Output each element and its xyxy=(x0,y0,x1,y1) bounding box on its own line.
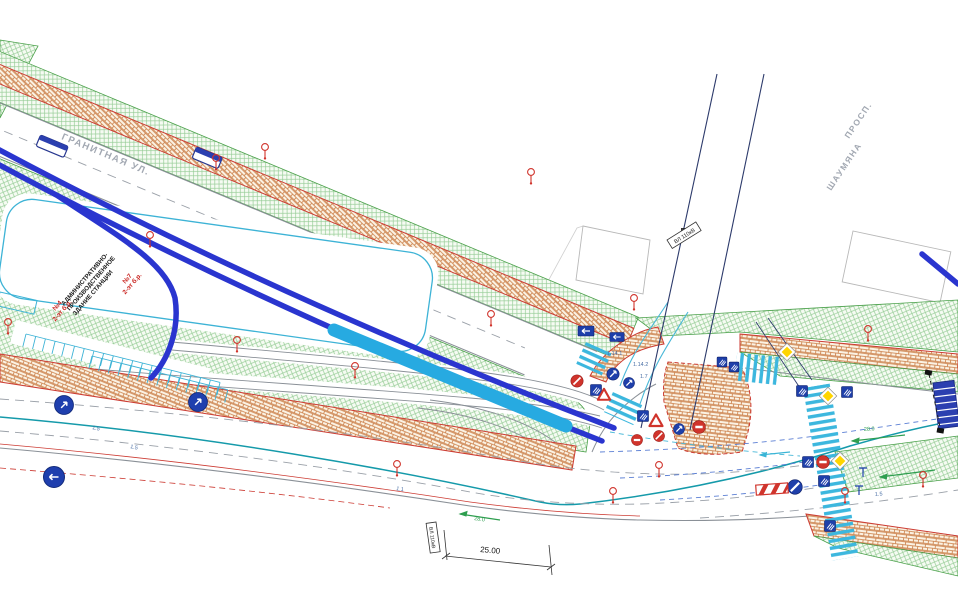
traffic-plan-page: ВЛ 110кВ ВЛ 110кВ 25.00 ГРАНИТНА xyxy=(0,0,958,612)
no-entry-sign-icon xyxy=(693,421,706,434)
direction-info-sign-icon xyxy=(610,333,624,342)
pedestrian-crossing-sign-icon xyxy=(803,457,814,468)
mandatory-direction-sign-icon xyxy=(607,368,619,380)
mandatory-direction-sign-icon xyxy=(623,377,634,388)
pedestrian-crossing-sign-icon xyxy=(842,387,853,398)
restriction-sign-icon xyxy=(653,430,664,441)
marking-label-1-7: 1.7 xyxy=(640,374,648,380)
pedestrian-crossing-sign-icon xyxy=(717,357,727,367)
pedestrian-crossing-sign-icon xyxy=(591,385,602,396)
marking-label-28-0: 28.0 xyxy=(864,426,875,433)
pedestrian-crossing-sign-icon xyxy=(638,411,649,422)
traffic-plan-canvas: ВЛ 110кВ ВЛ 110кВ 25.00 ГРАНИТНА xyxy=(0,0,958,612)
mandatory-direction-sign-icon xyxy=(673,423,684,434)
pedestrian-crossing-sign-icon xyxy=(819,476,830,487)
pedestrian-crossing-sign-icon xyxy=(729,362,739,372)
no-entry-sign-icon xyxy=(817,456,830,469)
zebra-crossing-slip-road xyxy=(734,353,779,385)
restriction-sign-icon xyxy=(571,375,583,387)
dimension-value: 25.00 xyxy=(480,545,501,556)
mandatory-direction-sign-icon xyxy=(44,467,65,488)
safety-barrier-icon xyxy=(756,483,789,495)
direction-info-sign-icon xyxy=(578,326,594,336)
marking-label-1-14-2: 1.14.2 xyxy=(633,362,648,368)
marking-label-1-14-1: 1.14.1 xyxy=(607,351,622,357)
marking-label-1-5: 1.5 xyxy=(875,491,883,498)
no-entry-sign-icon xyxy=(631,434,642,445)
pedestrian-crossing-sign-icon xyxy=(797,386,808,397)
restriction-sign-icon xyxy=(788,480,803,495)
pedestrian-crossing-sign-icon xyxy=(825,521,836,532)
